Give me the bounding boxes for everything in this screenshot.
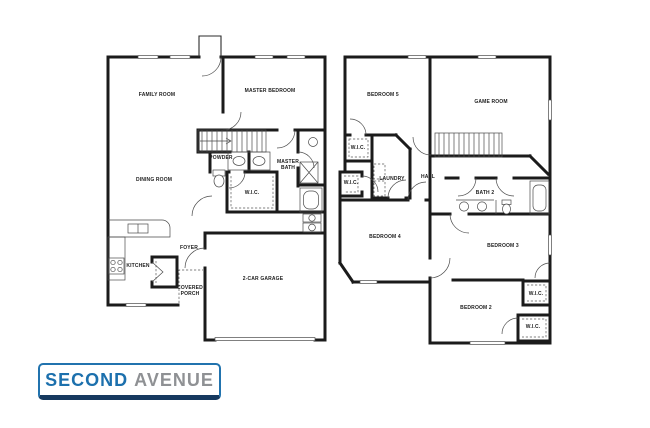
- label-bedroom2: BEDROOM 2: [460, 305, 492, 311]
- bedroom2-door-arc: [430, 258, 450, 278]
- toilet-icon: [309, 138, 318, 147]
- label-bedroom4: BEDROOM 4: [369, 234, 401, 240]
- label-foyer: FOYER: [180, 245, 198, 251]
- hall-opening-arc: [192, 196, 212, 216]
- label-hall: HALL: [421, 174, 435, 180]
- water-heater-icon: [309, 224, 316, 231]
- hall-door-arc: [413, 137, 431, 155]
- window: [408, 56, 426, 59]
- label-game-room: GAME ROOM: [474, 99, 507, 105]
- entry-alcove: [199, 36, 221, 57]
- water-heater-icon: [309, 215, 315, 221]
- label-wic-lower: W.I.C.: [344, 180, 359, 186]
- bedroom3-door-arc: [450, 214, 469, 233]
- window: [255, 56, 273, 59]
- label-family-room: FAMILY ROOM: [139, 92, 175, 98]
- window: [470, 342, 505, 345]
- burner-icon: [111, 260, 115, 264]
- label-laundry: LAUNDRY: [379, 176, 404, 182]
- bath2-door-arc: [458, 178, 476, 196]
- floorplan-second-floor: [340, 56, 551, 345]
- label-bedroom5: BEDROOM 5: [367, 92, 399, 98]
- label-master-bath: MASTER BATH: [275, 159, 302, 172]
- second-floor-interior-walls: [340, 57, 550, 343]
- tub-basin: [533, 185, 546, 211]
- window: [287, 56, 305, 59]
- sink-icon: [253, 157, 265, 166]
- floorplan-first-floor: [108, 36, 325, 341]
- stairwell-treads: [439, 133, 499, 157]
- label-powder: POWDER: [209, 155, 232, 161]
- burner-icon: [118, 260, 122, 264]
- label-wic-bed2: W.I.C.: [526, 324, 541, 330]
- second-avenue-logo: SECOND AVENUE: [38, 363, 221, 400]
- window: [138, 56, 158, 59]
- garage-door: [215, 338, 315, 341]
- label-master-bedroom: MASTER BEDROOM: [245, 88, 296, 94]
- wic5-door-arc: [350, 119, 366, 135]
- window: [360, 281, 377, 284]
- label-covered-porch: COVERED PORCH: [177, 285, 204, 298]
- kitchen-counter-left: [108, 237, 125, 280]
- label-dining-room: DINING ROOM: [136, 177, 172, 183]
- bath2-door-arc-2: [496, 178, 514, 196]
- closet-door-arc: [535, 263, 550, 278]
- label-wic-master: W.I.C.: [245, 190, 260, 196]
- laundry-door-arc: [388, 180, 406, 198]
- shower-glass-x: [300, 162, 318, 183]
- window: [478, 56, 496, 59]
- label-kitchen: KITCHEN: [126, 263, 149, 269]
- front-door-arc: [202, 57, 221, 76]
- burner-icon: [118, 267, 122, 271]
- first-floor-outer-walls: [108, 57, 325, 340]
- logo-word-second: SECOND: [45, 370, 128, 391]
- sink-icon: [477, 202, 486, 211]
- window: [126, 304, 146, 307]
- first-floor-interior-walls: [152, 57, 325, 287]
- window: [549, 100, 552, 120]
- wic-bed2-door-arc: [502, 318, 518, 334]
- wic-door-arc: [229, 172, 245, 188]
- label-garage: 2-CAR GARAGE: [243, 276, 283, 282]
- stove: [109, 258, 124, 274]
- stairwell: [435, 133, 502, 157]
- window: [549, 235, 552, 255]
- toilet-icon: [214, 175, 224, 187]
- tub-basin: [304, 191, 319, 209]
- sink-icon: [459, 202, 468, 211]
- master-bedroom-door-arc: [223, 112, 241, 130]
- toilet-icon: [503, 204, 511, 214]
- logo-word-avenue: AVENUE: [134, 370, 214, 391]
- sink-icon: [233, 157, 245, 166]
- pantry-bifold-doors: [152, 262, 163, 282]
- label-wic-upper: W.I.C.: [351, 145, 366, 151]
- window: [170, 56, 190, 59]
- stairs-arrow: [200, 138, 231, 144]
- label-bedroom3: BEDROOM 3: [487, 243, 519, 249]
- floorplan-page: { "floor1": { "labels": { "family_room":…: [0, 0, 650, 428]
- master-bath-door-arc: [277, 130, 295, 148]
- burner-icon: [111, 267, 115, 271]
- label-wic-bed3: W.I.C.: [529, 291, 544, 297]
- label-bath2: BATH 2: [476, 190, 495, 196]
- wic-lower-door-arc: [362, 176, 378, 192]
